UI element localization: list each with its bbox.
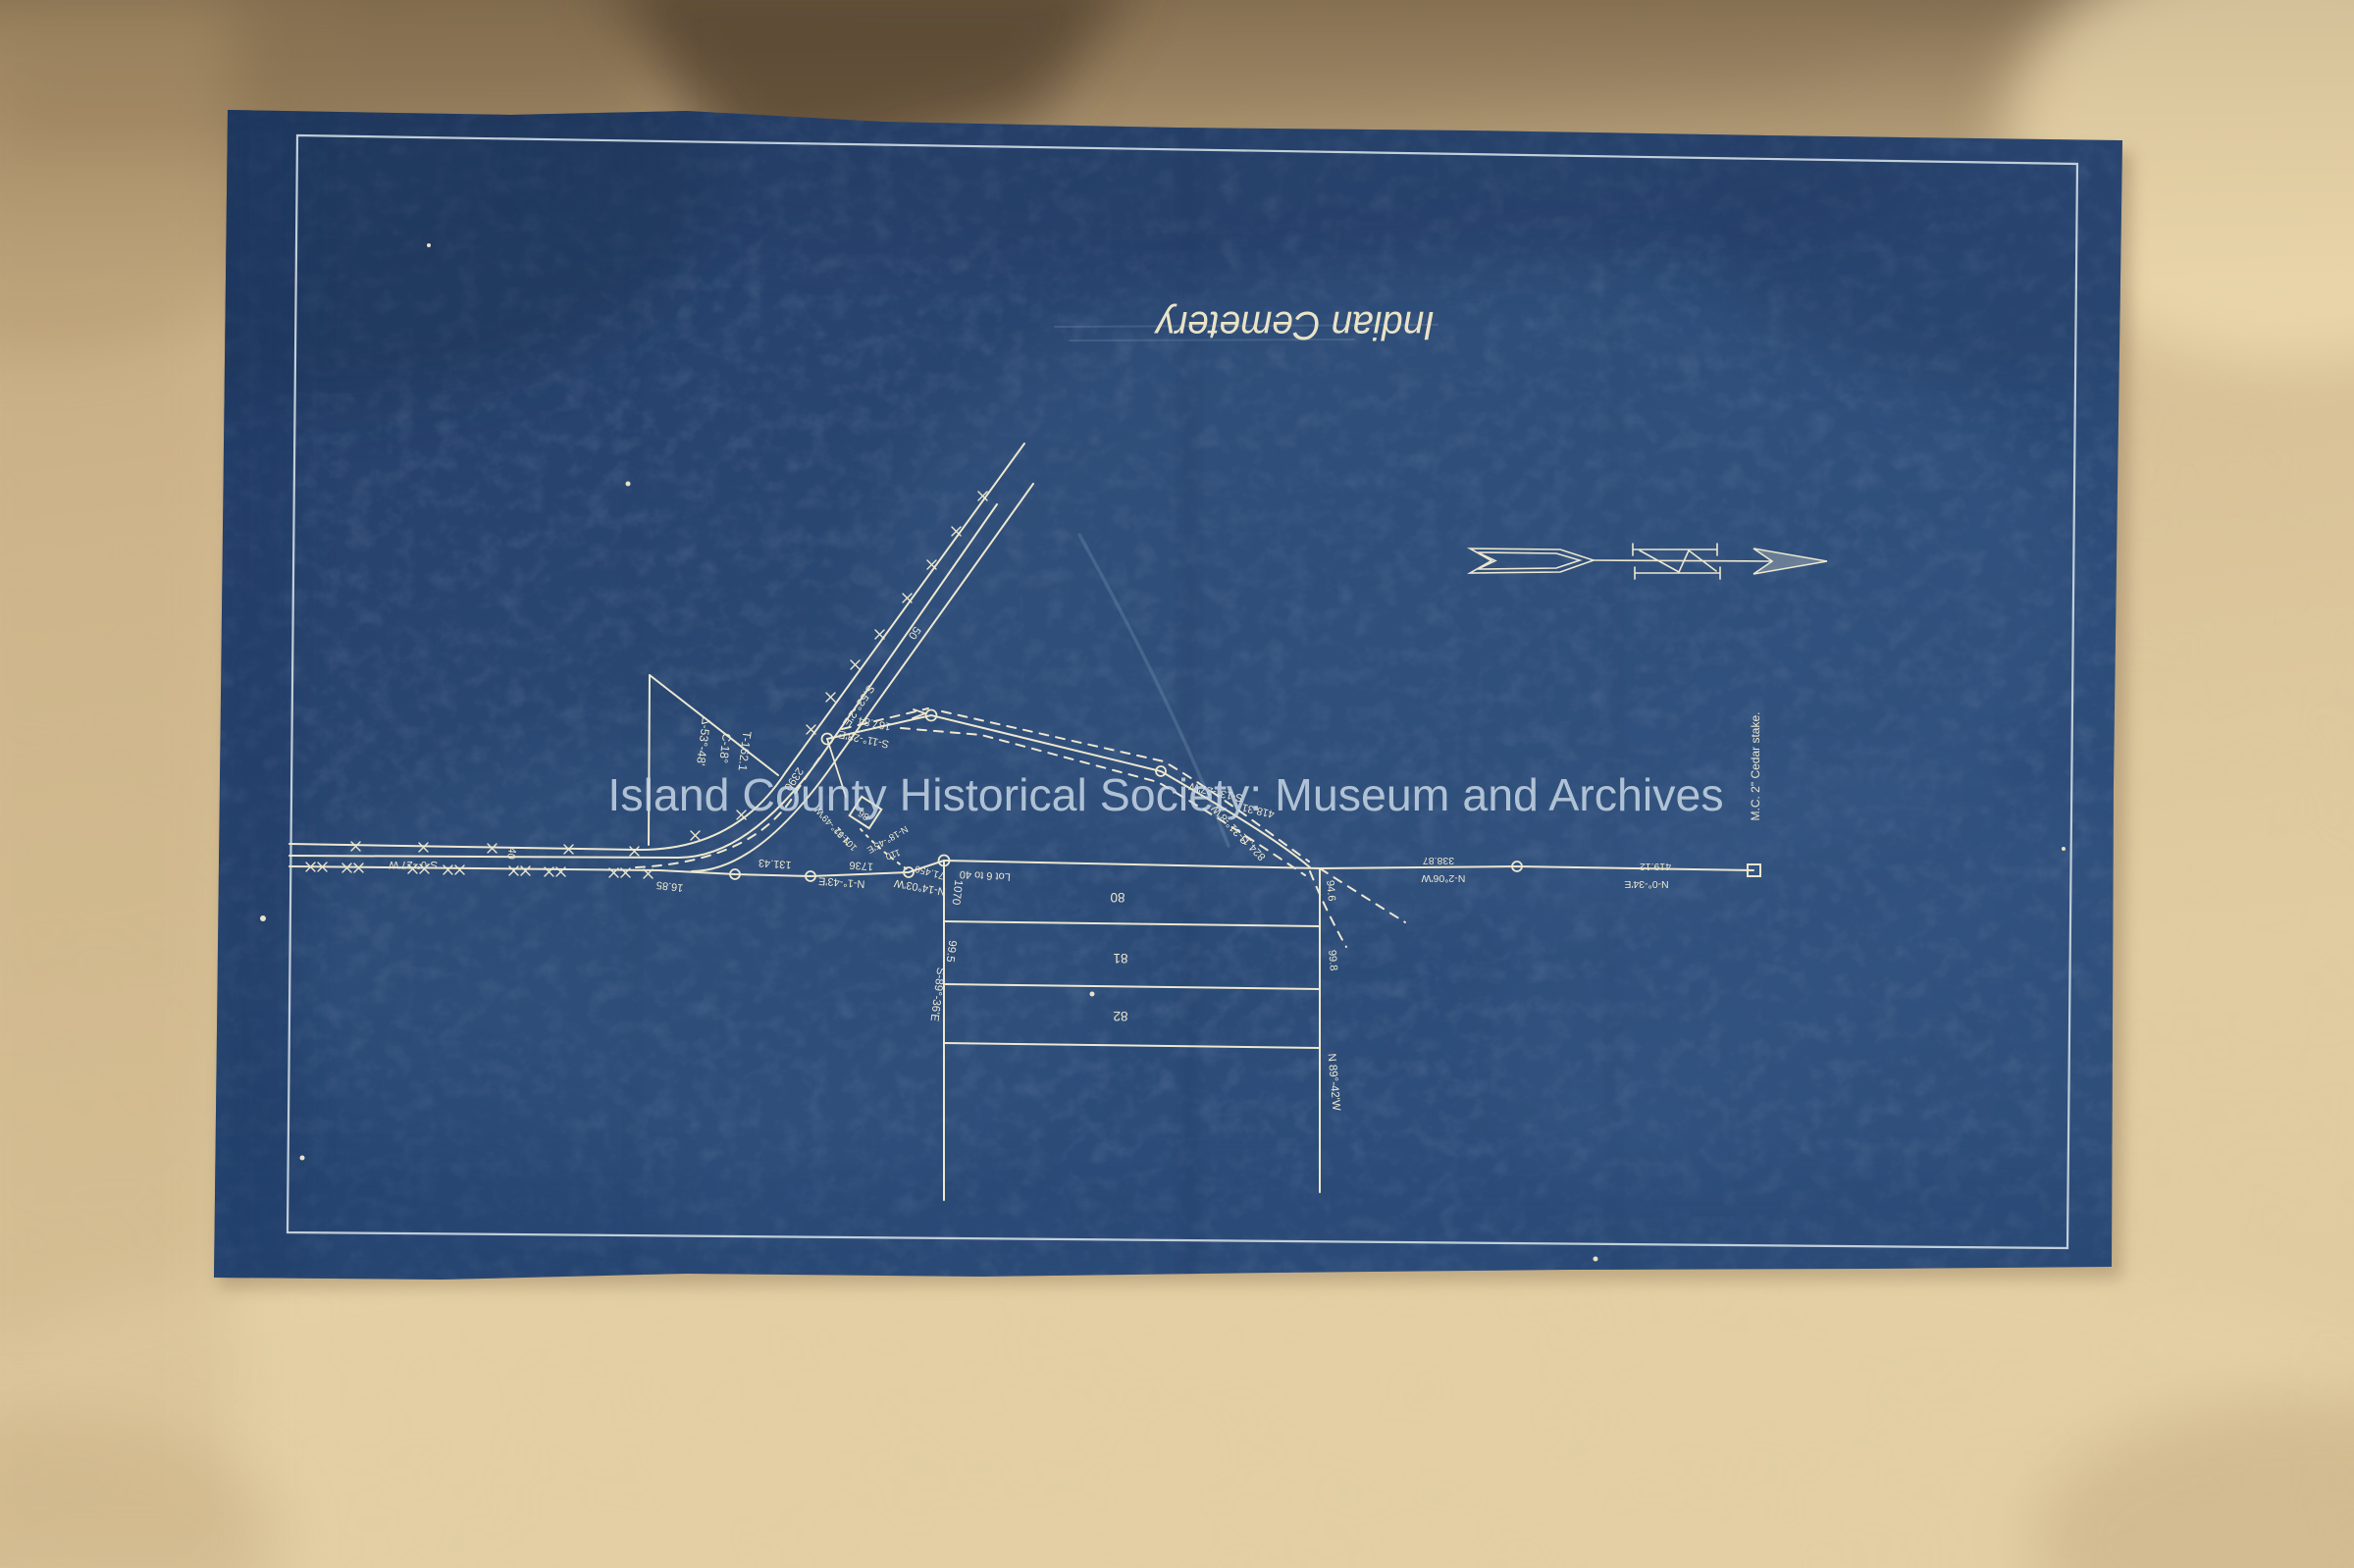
svg-text:338.87: 338.87 bbox=[1423, 855, 1454, 866]
svg-text:94.6: 94.6 bbox=[1324, 880, 1337, 902]
svg-text:99.8: 99.8 bbox=[1326, 950, 1339, 971]
svg-text:419.12: 419.12 bbox=[1640, 861, 1671, 872]
svg-text:N-0°-34'E: N-0°-34'E bbox=[1624, 878, 1668, 890]
svg-text:Indian Cemetery: Indian Cemetery bbox=[1154, 303, 1435, 348]
svg-text:Island County Historical Socie: Island County Historical Society: Museum… bbox=[607, 769, 1723, 820]
svg-text:82: 82 bbox=[1113, 1009, 1127, 1023]
svg-text:1736: 1736 bbox=[849, 859, 873, 872]
svg-text:M.C. 2" Cedar stake.: M.C. 2" Cedar stake. bbox=[1749, 712, 1762, 821]
svg-text:40: 40 bbox=[504, 846, 518, 860]
svg-text:81: 81 bbox=[1113, 951, 1127, 966]
svg-text:80: 80 bbox=[1110, 890, 1125, 905]
svg-text:N-2°06'W: N-2°06'W bbox=[1422, 872, 1466, 884]
svg-text:S-0°-27'W: S-0°-27'W bbox=[388, 859, 438, 870]
svg-text:131.43: 131.43 bbox=[759, 857, 792, 870]
